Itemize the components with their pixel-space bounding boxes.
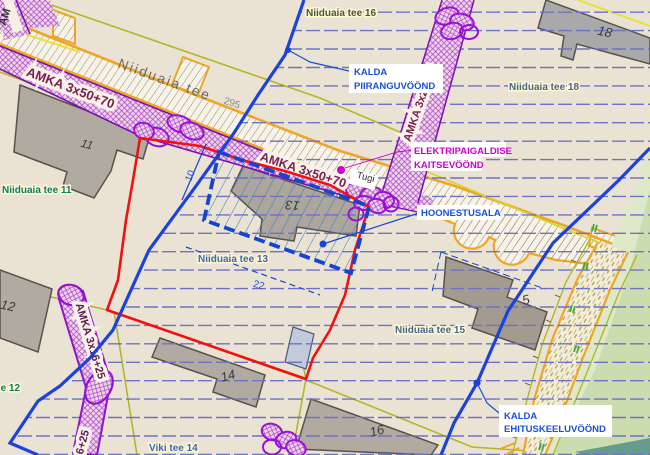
- svg-text:PIIRANGUVÖÖND: PIIRANGUVÖÖND: [354, 81, 435, 92]
- svg-text:Niiduaia tee 11: Niiduaia tee 11: [2, 185, 72, 196]
- svg-text:Niiduaia tee 18: Niiduaia tee 18: [509, 82, 579, 93]
- svg-text:ELEKTRIPAIGALDISE: ELEKTRIPAIGALDISE: [414, 146, 512, 157]
- svg-text:HOONESTUSALA: HOONESTUSALA: [421, 208, 501, 219]
- svg-text:Niiduaia tee 15: Niiduaia tee 15: [395, 325, 465, 336]
- svg-text:13: 13: [284, 197, 300, 213]
- svg-text:Niiduaia tee 13: Niiduaia tee 13: [198, 254, 268, 265]
- svg-text:Viki tee 14: Viki tee 14: [149, 443, 198, 454]
- svg-text:KAITSEVÖÖND: KAITSEVÖÖND: [414, 160, 484, 171]
- svg-text:EHITUSKEELUVÖÖND: EHITUSKEELUVÖÖND: [504, 424, 606, 435]
- svg-text:KALDA: KALDA: [504, 411, 537, 422]
- svg-text:Niiduaia tee 12: Niiduaia tee 12: [0, 383, 20, 394]
- svg-text:KALDA: KALDA: [354, 67, 387, 78]
- svg-text:Niiduaia tee 16: Niiduaia tee 16: [306, 8, 376, 19]
